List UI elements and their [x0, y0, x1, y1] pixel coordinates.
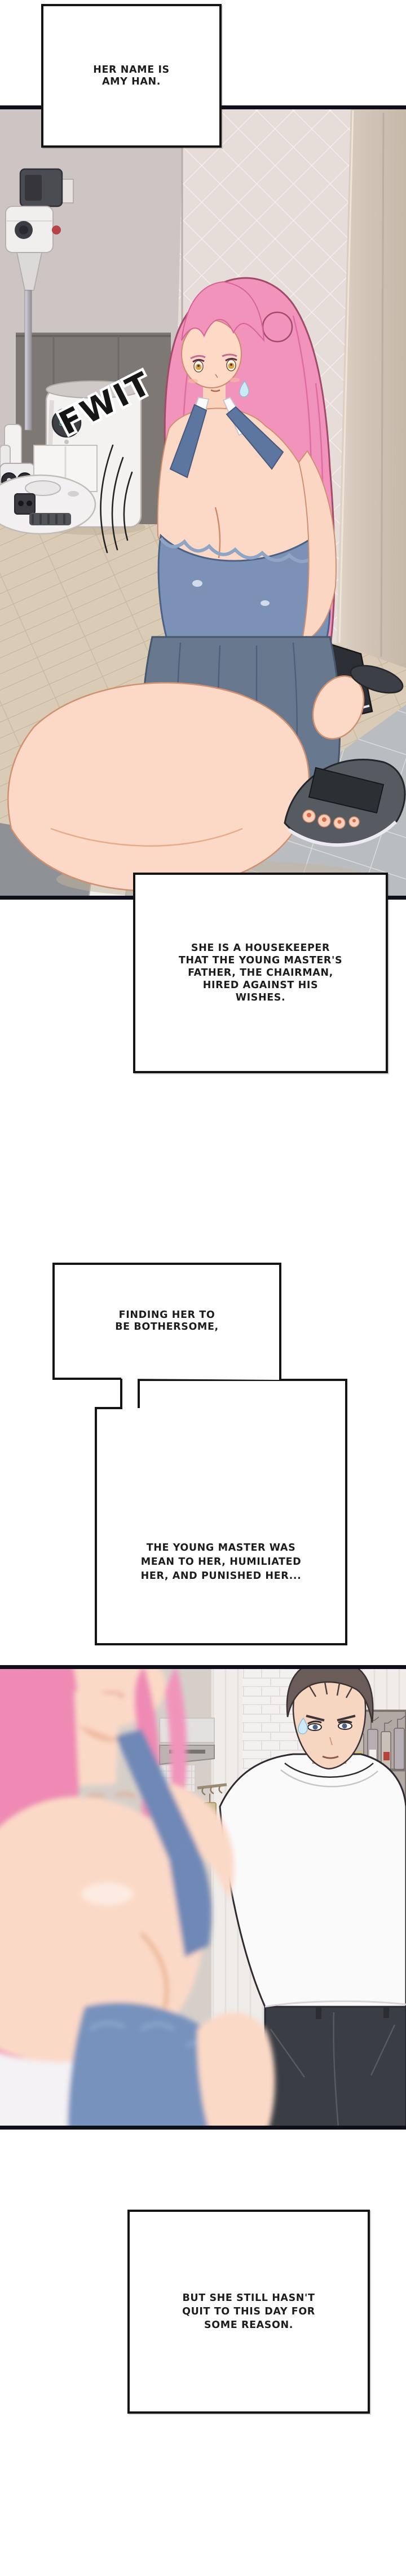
narration-line: HER NAME IS	[93, 64, 170, 76]
narration-line: QUIT TO THIS DAY FOR	[182, 2305, 315, 2318]
narration-box-1: HER NAME IS AMY HAN.	[41, 4, 222, 148]
panel-1-artwork: 88:8	[0, 105, 406, 900]
webtoon-page: 88:8	[0, 0, 406, 2576]
narration-line: AMY HAN.	[102, 76, 161, 88]
narration-line: BUT SHE STILL HASN'T	[182, 2291, 315, 2305]
narration-line: FINDING HER TO	[119, 1309, 215, 1321]
narration-box-2: SHE IS A HOUSEKEEPER THAT THE YOUNG MAST…	[133, 873, 388, 1073]
panel-2-top-border	[0, 1665, 406, 1669]
narration-line: BE BOTHERSOME,	[115, 1321, 219, 1333]
narration-line: FATHER, THE CHAIRMAN,	[188, 967, 333, 979]
man-pants	[265, 2004, 406, 2129]
panel-2-bottom-border	[0, 2126, 406, 2130]
panel-2-artwork	[0, 1665, 406, 2130]
narration-box-3: FINDING HER TO BE BOTHERSOME,	[54, 1264, 280, 1379]
narration-box-4: THE YOUNG MASTER WAS MEAN TO HER, HUMILI…	[96, 1480, 346, 1644]
narration-line: THAT THE YOUNG MASTER'S	[179, 954, 342, 967]
narration-line: HIRED AGAINST HIS	[203, 979, 318, 992]
narration-line: SHE IS A HOUSEKEEPER	[191, 942, 330, 954]
narration-line: THE YOUNG MASTER WAS	[147, 1541, 296, 1555]
narration-line: SOME REASON.	[204, 2318, 293, 2332]
narration-line: HER, AND PUNISHED HER...	[141, 1569, 302, 1583]
narration-line: WISHES.	[236, 992, 285, 1004]
narration-box-5: BUT SHE STILL HASN'T QUIT TO THIS DAY FO…	[127, 2210, 370, 2414]
narration-line: MEAN TO HER, HUMILIATED	[141, 1555, 302, 1569]
